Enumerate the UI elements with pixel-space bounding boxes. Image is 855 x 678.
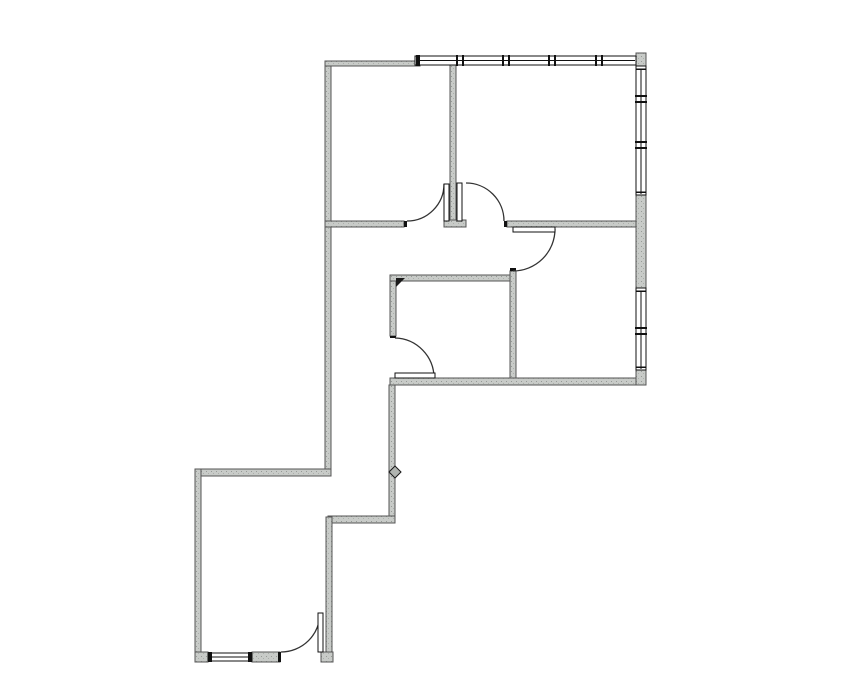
wall-top-gray	[325, 61, 420, 66]
wall-right-mid	[636, 195, 646, 288]
wall-bottomroom-south-b	[252, 652, 280, 662]
wall-bottomroom-south-a	[195, 652, 208, 662]
door-mid-left-leaf	[395, 373, 435, 378]
door-top-left-leaf	[444, 184, 449, 221]
door-mid-right-leaf	[513, 227, 555, 232]
wall-bottomroom-north	[195, 469, 331, 476]
jamb-exterior-door-west	[278, 652, 281, 662]
wall-toprooms-bottom-east	[507, 221, 636, 227]
door-mid-left-swing-arc	[395, 338, 434, 378]
wall-top-center-divider	[450, 64, 456, 221]
wall-corridor-end	[328, 516, 395, 523]
wall-hall-south	[390, 275, 516, 281]
jamb-doubledoor-east	[504, 221, 507, 227]
floor-plan-svg	[0, 0, 855, 678]
wall-bottomroom-south-stub	[321, 652, 333, 662]
marker-corner-triangle	[396, 278, 405, 287]
floor-plan-root	[195, 53, 647, 662]
wall-topright-corner	[636, 53, 646, 66]
wall-midleft-west	[390, 281, 396, 336]
wall-mid-bottom	[390, 378, 636, 385]
wall-bottomroom-east	[326, 517, 332, 662]
door-top-left-swing-arc	[407, 184, 444, 221]
jamb-doubledoor-west	[404, 221, 407, 227]
wall-corridor-east	[389, 385, 395, 523]
door-bottomroom-exterior-swing-arc	[281, 613, 320, 652]
door-bottomroom-exterior-leaf	[318, 613, 323, 652]
wall-toprooms-bottom-west	[325, 221, 404, 227]
floor-plan-canvas	[0, 0, 855, 678]
wall-exterior-left	[325, 61, 331, 476]
door-top-right-swing-arc	[466, 183, 504, 221]
door-mid-right-swing-arc	[513, 229, 555, 271]
wall-mid-divider	[510, 271, 516, 383]
wall-right-bottom-corner	[636, 370, 646, 385]
door-top-right-leaf	[457, 183, 462, 221]
wall-bottomroom-west	[195, 469, 201, 662]
